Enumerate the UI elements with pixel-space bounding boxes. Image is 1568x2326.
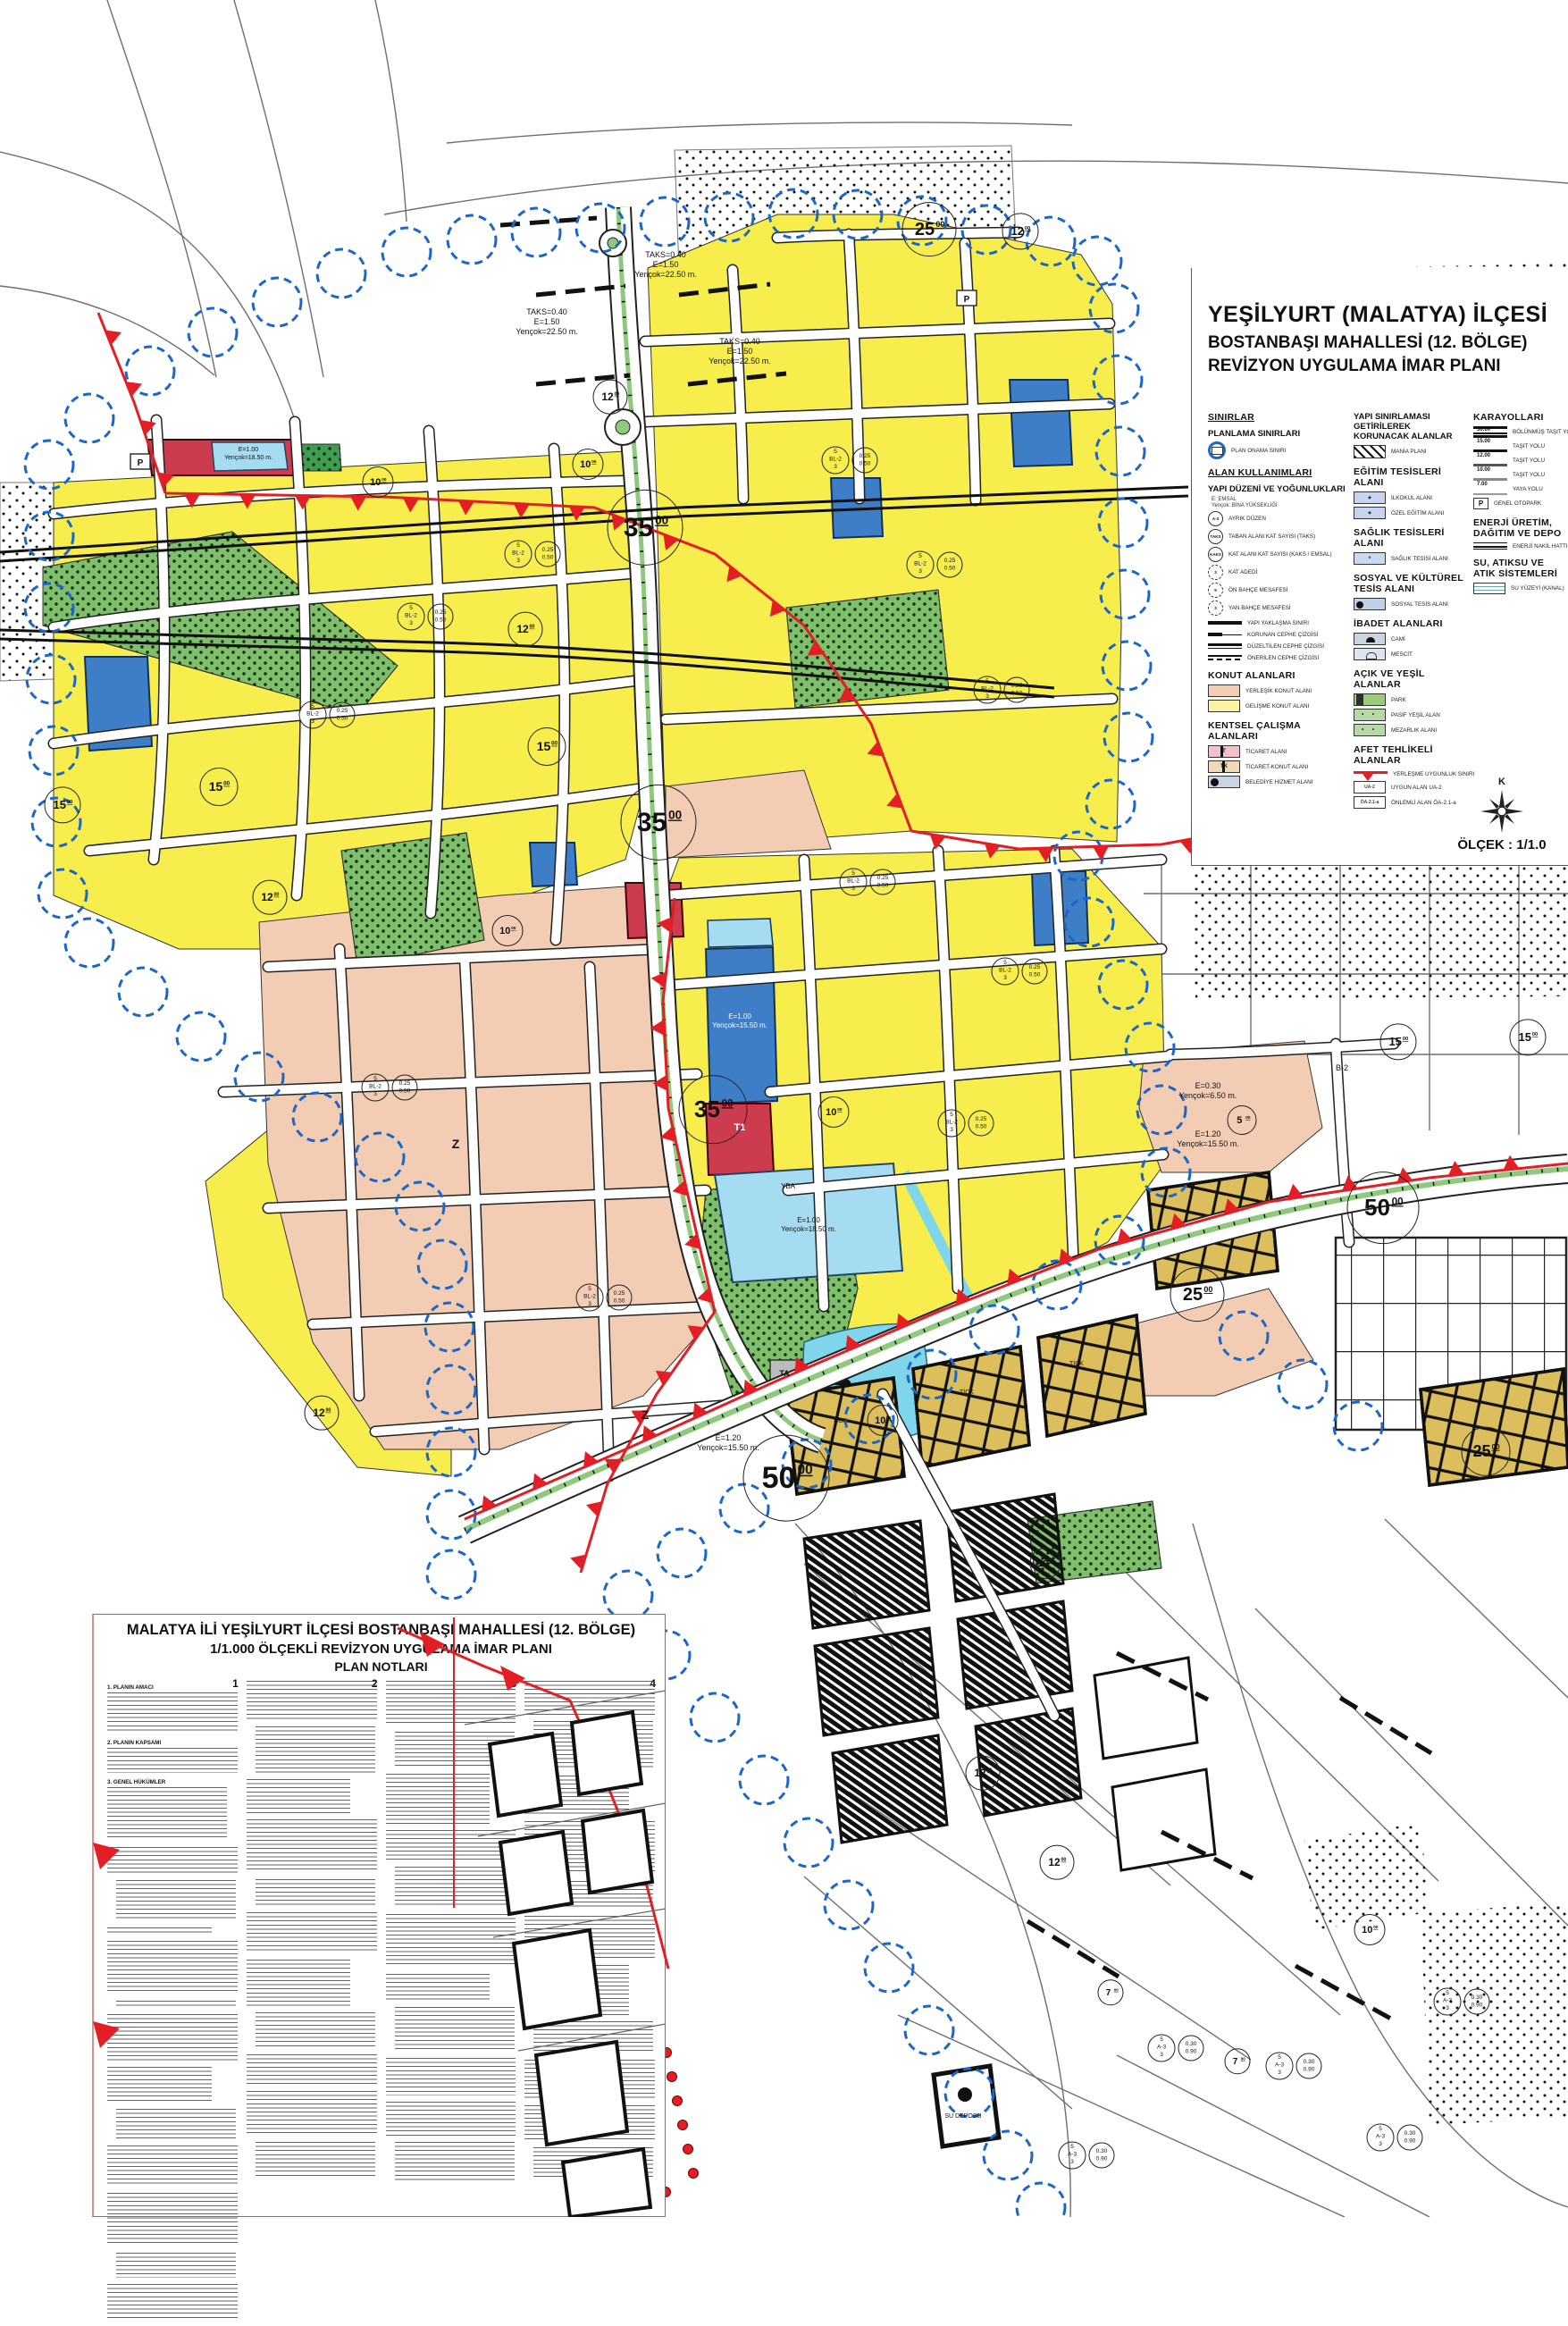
notes-column: 4 [520,1679,659,2326]
zone-ratio-label: 0.90 [1472,2003,1483,2009]
road-width-label: 15 [209,779,223,794]
legend-item-label: YAN BAHÇE MESAFESİ [1228,605,1291,611]
legend-item: 3YAN BAHÇE MESAFESİ [1208,600,1346,616]
zone-ratio-label: 0.50 [1011,691,1023,697]
legend-note: Yençok: BİNA YÜKSEKLİĞİ [1212,503,1346,508]
road-width-label: 12 [261,891,273,903]
zone-ratio-label: 5 [1003,960,1007,966]
notes-column: 2 [242,1679,382,2326]
box-bha-swatch [1208,776,1240,788]
zone-ratio-label: 5 [918,553,922,559]
notes-paragraph [533,2147,653,2179]
notes-paragraph [116,2001,236,2008]
notes-paragraph [533,2021,653,2053]
svg-text:00: 00 [798,1463,813,1478]
svg-text:00: 00 [1203,1285,1212,1294]
legend-item-label: YAYA YOLU [1513,486,1543,492]
zone-ratio-label: A-3 [1376,2134,1386,2140]
zone-label: Yençok=6.50 m. [1179,1091,1237,1100]
notes-title-line2: 1/1.000 ÖLÇEKLİ REVİZYON UYGULAMA İMAR P… [103,1642,659,1657]
zone-ratio-label: A-3 [1068,2152,1077,2158]
plan-title-block: YEŞİLYURT (MALATYA) İLÇESİ BOSTANBAŞI MA… [1208,302,1565,376]
notes-paragraph [386,1974,491,2001]
legend-item-label: GELİŞME KONUT ALANI [1245,703,1309,710]
notes-paragraph [395,2142,515,2181]
zone-ratio-label: 0.25 [1029,964,1041,970]
zone-label: TİCK [960,1388,974,1396]
legend-panel: YEŞİLYURT (MALATYA) İLÇESİ BOSTANBAŞI MA… [1191,268,1568,866]
box-edu-swatch: ✦ [1354,507,1386,519]
notes-paragraph [107,1927,212,1935]
zone-ratio-label: BL-2 [369,1084,382,1090]
legend-item: BELEDİYE HİZMET ALANI [1208,776,1346,788]
legend-section-heading: YAPI SINIRLAMASI GETİRİLEREK [1354,412,1468,432]
zone-ratio-label: 0.30 [1404,2130,1416,2137]
notes-paragraph [107,2145,238,2187]
notes-title-line1: MALATYA İLİ YEŞİLYURT İLÇESİ BOSTANBAŞI … [103,1622,659,1639]
legend-item-label: TAŞIT YOLU [1513,472,1545,478]
legend-item-label: KAT ALANI KAT SAYISI (KAKS / EMSAL) [1228,551,1332,558]
zone-label: Yençok=22.50 m. [634,270,696,279]
circ-dash-swatch: 3 [1208,565,1223,580]
svg-text:00: 00 [1114,1988,1119,1993]
legend-item: ÖNERİLEN CEPHE ÇİZGİSİ [1208,653,1346,662]
zone-ratio-label: BL-2 [999,968,1011,974]
box-cami-swatch [1354,633,1386,645]
legend-item-label: KAT ADEDİ [1228,569,1257,575]
legend-section-heading: SINIRLAR [1208,412,1346,423]
zone-label: E=1.00 [728,1012,751,1020]
plan-title-line2: BOSTANBAŞI MAHALLESİ (12. BÖLGE) [1208,333,1565,353]
legend-item-label: AYRIK DÜZEN [1228,516,1266,522]
zone-ratio-label: 3 [373,1091,377,1097]
zone-ratio-label: 0.30 [1472,1994,1483,2001]
legend-item: PGENEL OTOPARK [1473,498,1566,509]
notes-paragraph [386,1681,516,1726]
zoning-plan-sheet: { "title": { "line1": "YEŞİLYURT (MALATY… [0,0,1568,2217]
zone-ratio-label: BL-2 [512,550,524,557]
circ-dash-swatch: 3 [1208,600,1223,616]
zone-ratio-label: 0.50 [614,1298,625,1305]
zone-label: E=1.50 [653,260,679,269]
box-yellow-swatch [1208,700,1240,712]
zone-ratio-label: BL-2 [405,613,417,619]
legend-item: CAMİ [1354,633,1468,645]
circ-swatch: A-3 [1208,511,1223,526]
road-width-label: 10 [826,1107,836,1118]
legend-item-label: SU YÜZEYİ (KANAL) [1511,585,1564,592]
box-park-swatch [1354,693,1386,706]
box-mescit-swatch [1354,648,1386,660]
notes-paragraph [386,1830,516,1860]
notes-column: 3 [382,1679,521,2326]
notes-paragraph [524,2060,655,2099]
zone-label: Yençok=22.50 m. [709,357,770,365]
legend-item: ENERJİ NAKİL HATTI [1473,542,1566,550]
legend-item-label: GENEL OTOPARK [1494,500,1541,507]
zone-label: P [964,295,970,305]
zone-label: E=1.20 [1195,1129,1221,1138]
legend-item: SU YÜZEYİ (KANAL) [1473,583,1566,594]
svg-text:00: 00 [935,220,944,229]
zone-ratio-label: BL-2 [914,561,927,567]
zone-label: Yençok=15.50 m. [697,1443,759,1452]
box-water-swatch [1473,583,1505,594]
box-edu-swatch: ✦ [1354,491,1386,504]
legend-column-3: KARAYOLLARI50.00BÖLÜNMÜŞ TAŞIT YOLU15.00… [1473,404,1566,811]
zone-label: Yençok=22.50 m. [516,327,577,336]
zone-ratio-label: 3 [918,568,922,575]
svg-text:00: 00 [273,893,279,898]
legend-item: A-3AYRIK DÜZEN [1208,511,1346,526]
legend-item: 15.00TAŞIT YOLU [1473,441,1566,452]
legend-subheading: YAPI DÜZENİ VE YOĞUNLUKLARI [1208,484,1346,494]
zone-ratio-label: 0.30 [1304,2059,1315,2065]
svg-text:00: 00 [1061,1858,1066,1863]
road-width-label: 25 [1472,1442,1490,1460]
zone-label: E=1.20 [716,1433,742,1442]
notes-paragraph [247,1819,377,1873]
notes-paragraph [107,2193,238,2246]
zone-ratio-label: 0.90 [1404,2138,1416,2145]
road-width-label: 7 [1233,2057,1238,2067]
legend-item-label: ÖN BAHÇE MESAFESİ [1228,587,1287,593]
legend-item-label: MESCİT [1391,651,1413,658]
box-tk-swatch: TK [1208,760,1240,773]
svg-text:00: 00 [1392,1196,1404,1207]
zone-ratio-label: 0.25 [859,453,871,459]
legend-item: 5ÖN BAHÇE MESAFESİ [1208,583,1346,598]
road-width-label: 12 [974,1767,986,1779]
legend-item-label: TABAN ALANI KAT SAYISI (TAKS) [1228,533,1315,540]
zone-ratio-label: 3 [1278,2070,1281,2076]
legend-item-label: ÖNLEMLİ ALAN ÖA-2.1-a [1391,800,1456,806]
road-width-label: 15 [537,739,551,753]
zone-label: TAKS=0.40 [645,250,686,259]
svg-text:00: 00 [382,477,387,483]
notes-paragraph [247,1681,377,1720]
zone-ratio-label: 0.50 [944,566,956,572]
box-p-swatch: P [1473,498,1488,509]
svg-text:00: 00 [1492,1443,1501,1451]
svg-text:00: 00 [325,1408,331,1414]
road-width-label: 25 [1183,1285,1203,1305]
zone-ratio-label: 0.25 [976,1116,987,1122]
legend-section-heading: SU, ATIKSU VE ATIK SİSTEMLERİ [1473,558,1566,579]
zone-ratio-label: 0.25 [944,558,956,564]
compass-star-icon [1478,787,1526,836]
zone-ratio-label: BL-2 [306,711,319,718]
svg-text:00: 00 [1403,1037,1409,1042]
legend-item-label: SAĞLIK TESİSİ ALANI [1391,556,1448,562]
legend-item-label: MANİA PLANI [1391,449,1427,455]
legend-section-heading: KONUT ALANLARI [1208,670,1346,681]
notes-paragraph [107,1941,238,1994]
legend-item-label: TAŞIT YOLU [1513,458,1545,464]
road-width-label: 35 [637,808,667,837]
box-social-swatch [1354,598,1386,610]
zone-ratio-label: BL-2 [981,686,994,693]
zone-label: E=0.30 [1195,1081,1221,1090]
legend-section-heading: AFET TEHLİKELİ ALANLAR [1354,744,1468,766]
line-onerilen-swatch [1208,653,1242,662]
legend-item: • •MEZARLIK ALANI [1354,724,1468,736]
zone-ratio-label: 5 [1160,2036,1163,2043]
notes-paragraph [247,2091,377,2136]
svg-text:00: 00 [837,1107,843,1113]
notes-paragraph [256,2012,375,2048]
zone-label: Yençok=18.50 m. [224,455,273,461]
legend-item-label: KORUNAN CEPHE ÇİZGİSİ [1247,632,1318,638]
legend-columns: SINIRLARPLANLAMA SINIRLARIPLAN ONAMA SIN… [1208,404,1565,811]
zone-ratio-label: 0.25 [399,1080,411,1087]
zone-label: Z [452,1137,460,1151]
svg-text:00: 00 [1025,226,1031,231]
notes-paragraph [524,2105,655,2141]
legend-item: KAKSKAT ALANI KAT SAYISI (KAKS / EMSAL) [1208,547,1346,562]
zone-ratio-label: 0.30 [1096,2148,1108,2154]
zone-label: Z [641,1407,650,1422]
line-thick-swatch [1208,618,1242,627]
legend-item-label: CAMİ [1391,636,1405,642]
road-width-label: 10 [1037,1558,1048,1569]
line-duzeltilen-swatch [1208,642,1242,651]
road-15-swatch: 15.00 [1473,441,1507,452]
legend-item: KORUNAN CEPHE ÇİZGİSİ [1208,630,1346,639]
notes-paragraph [107,2067,212,2103]
zone-ratio-label: 0.25 [435,609,447,616]
svg-text:00: 00 [1241,2057,1246,2061]
notes-paragraph [533,1881,653,1910]
notes-section-heading: 3. GENEL HÜKÜMLER [107,1779,238,1785]
road-50-swatch: 50.00 [1473,426,1507,438]
zone-label: T1 [734,1122,746,1133]
box-health-swatch: + [1354,552,1386,565]
legend-item: PLAN ONAMA SINIRI [1208,441,1346,459]
svg-text:00: 00 [986,1768,992,1774]
zone-ratio-label: 3 [588,1301,591,1307]
zone-label: P [138,458,144,468]
legend-item-label: TİCARET ALANI [1245,749,1287,755]
circ-swatch: KAKS [1208,547,1223,562]
zone-ratio-label: 0.50 [877,883,889,889]
road-width-label: 12 [1011,224,1024,238]
zone-ratio-label: 3 [1446,2005,1449,2011]
legend-item-label: TAŞIT YOLU [1513,443,1545,449]
legend-section-heading: AÇIK VE YEŞİL ALANLAR [1354,668,1468,690]
legend-item-label: TİCARET-KONUT ALANI [1245,764,1308,770]
zone-ratio-label: 0.50 [399,1088,411,1095]
zone-ratio-label: 3 [311,718,314,725]
line-energy-swatch [1473,542,1507,550]
svg-text:00: 00 [591,459,597,465]
zone-ratio-label: 5 [1379,2126,1382,2132]
plan-title-line1: YEŞİLYURT (MALATYA) İLÇESİ [1208,302,1565,328]
zone-label: TİCK [833,1416,847,1424]
legend-section-heading: SOSYAL VE KÜLTÜREL TESİS ALANI [1354,573,1468,594]
svg-text:00: 00 [511,926,516,931]
zone-ratio-label: 3 [985,693,989,700]
zone-ratio-label: A-3 [1157,2045,1167,2051]
zone-ratio-label: 5 [834,449,837,455]
legend-item: PARK [1354,693,1468,706]
notes-paragraph [386,2102,516,2136]
zone-ratio-label: 5 [311,703,314,710]
scale-label: ÖLÇEK : 1/1.0 [1448,837,1555,852]
legend-item: ✦İLKOKUL ALANI [1354,491,1468,504]
notes-paragraph [247,1779,351,1813]
zone-ratio-label: 5 [851,870,855,877]
notes-paragraph [395,1732,515,1768]
legend-section-heading: EĞİTİM TESİSLERİ ALANI [1354,466,1468,488]
legend-subheading: PLANLAMA SINIRLARI [1208,429,1346,439]
road-width-label: 12 [1048,1856,1061,1868]
legend-item: YERLEŞİK KONUT ALANI [1208,684,1346,697]
svg-text:00: 00 [1532,1032,1539,1037]
zone-label: TA [779,1369,790,1378]
road-width-label: 50 [762,1461,796,1495]
zone-ratio-label: 0.30 [1186,2041,1197,2047]
road-width-label: 10 [1362,1925,1372,1936]
legend-section-heading: KARAYOLLARI [1473,412,1566,423]
legend-item: 7.00YAYA YOLU [1473,483,1566,495]
legend-item: ✦ÖZEL EĞİTİM ALANI [1354,507,1468,519]
road-width-label: 10 [499,926,510,936]
legend-item-label: PARK [1391,697,1406,703]
zone-ratio-label: 0.90 [1096,2156,1108,2162]
svg-text:00: 00 [668,809,682,822]
road-7-swatch: 7.00 [1473,483,1507,495]
notes-section-heading: 1. PLANIN AMACI [107,1684,238,1691]
road-12-swatch: 12.00 [1473,455,1507,466]
plan-onama-swatch [1208,441,1226,459]
road-width-label: 7 [1106,1988,1111,1998]
legend-item-label: SOSYAL TESİS ALANI [1391,601,1448,608]
notes-paragraph [107,1748,238,1773]
notes-column: 11. PLANIN AMACI2. PLANIN KAPSAMI3. GENE… [103,1679,242,2326]
zone-ratio-label: 5 [1070,2144,1074,2150]
road-width-label: 15 [1519,1030,1531,1044]
legend-column-1: SINIRLARPLANLAMA SINIRLARIPLAN ONAMA SIN… [1208,404,1346,811]
notes-column-number: 1 [232,1677,239,1690]
zone-ratio-label: 3 [851,886,855,892]
zone-ratio-label: 0.25 [877,875,889,881]
zone-ratio-label: 3 [1003,975,1007,981]
legend-item: SOSYAL TESİS ALANI [1354,598,1468,610]
svg-text:00: 00 [67,800,73,805]
legend-item-label: MEZARLIK ALANI [1391,727,1437,734]
notes-paragraph [107,1692,238,1734]
notes-paragraph [533,1721,653,1769]
zone-ratio-label: 3 [1379,2141,1382,2147]
legend-item-label: PLAN ONAMA SINIRI [1231,448,1286,454]
road-width-label: 25 [915,220,935,239]
legend-item-label: YAPI YAKLAŞMA SINIRI [1247,620,1309,626]
notes-paragraph [116,2109,236,2139]
zone-ratio-label: BL-2 [829,457,842,463]
road-width-label: 12 [516,623,529,635]
zone-ratio-label: 5 [950,1112,953,1118]
zone-ratio-label: 5 [409,605,413,611]
legend-item-label: DÜZELTİLEN CEPHE ÇİZGİSİ [1247,643,1324,650]
circ-dash-swatch: 5 [1208,583,1223,598]
zone-label: E=1.00 [239,447,258,453]
notes-paragraph [386,2058,516,2095]
zone-ratio-label: 5 [588,1286,591,1292]
legend-item: 50.00BÖLÜNMÜŞ TAŞIT YOLU [1473,426,1566,438]
svg-text:00: 00 [551,741,558,747]
zone-label: SU DEPOSU [944,2113,981,2120]
svg-text:00: 00 [614,392,619,398]
road-10-swatch: 10.00 [1473,469,1507,481]
zone-label: B-2 [1336,1063,1348,1072]
zone-label: Yençok=15.50 m. [1177,1139,1238,1148]
notes-paragraph [107,2014,238,2061]
zone-label: TİCK [1069,1359,1084,1367]
zone-ratio-label: 0.25 [542,547,554,553]
legend-item-label: İLKOKUL ALANI [1391,495,1432,501]
zone-ratio-label: 3 [1160,2052,1163,2058]
zone-label: E=1.50 [727,347,753,356]
zone-ratio-label: 0.50 [337,716,348,722]
notes-paragraph [247,2054,377,2085]
notes-paragraph [386,1774,491,1824]
road-width-label: 12 [601,390,614,403]
compass-rose: K ÖLÇEK : 1/1.0 [1448,777,1555,852]
zone-ratio-label: BL-2 [583,1294,596,1300]
zone-ratio-label: 0.50 [976,1124,987,1130]
zone-label: Yençok=18.50 m. [781,1225,836,1233]
legend-item-label: BÖLÜNMÜŞ TAŞIT YOLU [1513,429,1568,435]
legend-item: MANİA PLANI [1354,445,1468,458]
svg-text:00: 00 [223,781,231,787]
notes-paragraph [107,1847,238,1874]
legend-column-2: YAPI SINIRLAMASI GETİRİLEREKKORUNACAK AL… [1354,404,1468,811]
legend-section-heading: KENTSEL ÇALIŞMA ALANLARI [1208,720,1346,742]
zone-ratio-label: BL-2 [847,878,859,885]
zone-label: TAKS=0.40 [719,337,760,346]
zone-ratio-label: A-3 [1443,1998,1453,2004]
legend-section-heading: İBADET ALANLARI [1354,618,1468,629]
svg-text:00: 00 [886,1415,892,1421]
zone-ratio-label: 0.50 [859,461,871,467]
zone-label: E=1.50 [534,317,560,326]
notes-paragraph [386,1914,516,1968]
legend-item: MESCİT [1354,648,1468,660]
notes-paragraph [247,1960,351,2006]
zone-ratio-label: BL-2 [945,1120,958,1126]
zone-ratio-label: 3 [409,620,413,626]
notes-paragraph [524,1776,629,1815]
line-red-swatch [1354,769,1388,778]
zone-ratio-label: 3 [834,464,837,470]
notes-paragraph [116,2253,236,2278]
notes-paragraph [247,1912,377,1953]
notes-section-heading: 2. PLANIN KAPSAMI [107,1740,238,1746]
road-width-label: 15 [1389,1035,1402,1048]
zone-ratio-label: A-3 [1275,2062,1285,2069]
zone-ratio-label: 0.25 [337,708,348,714]
notes-paragraph [116,1880,236,1921]
notes-paragraph [107,1787,227,1841]
notes-title-line3: PLAN NOTLARI [103,1659,659,1674]
svg-text:00: 00 [1049,1558,1054,1564]
legend-item: TAKSTABAN ALANI KAT SAYISI (TAKS) [1208,529,1346,544]
zone-ratio-label: 3 [950,1127,953,1133]
hatch-swatch [1354,445,1386,458]
legend-item: TKTİCARET-KONUT ALANI [1208,760,1346,773]
road-width-label: 5 [1237,1115,1242,1126]
